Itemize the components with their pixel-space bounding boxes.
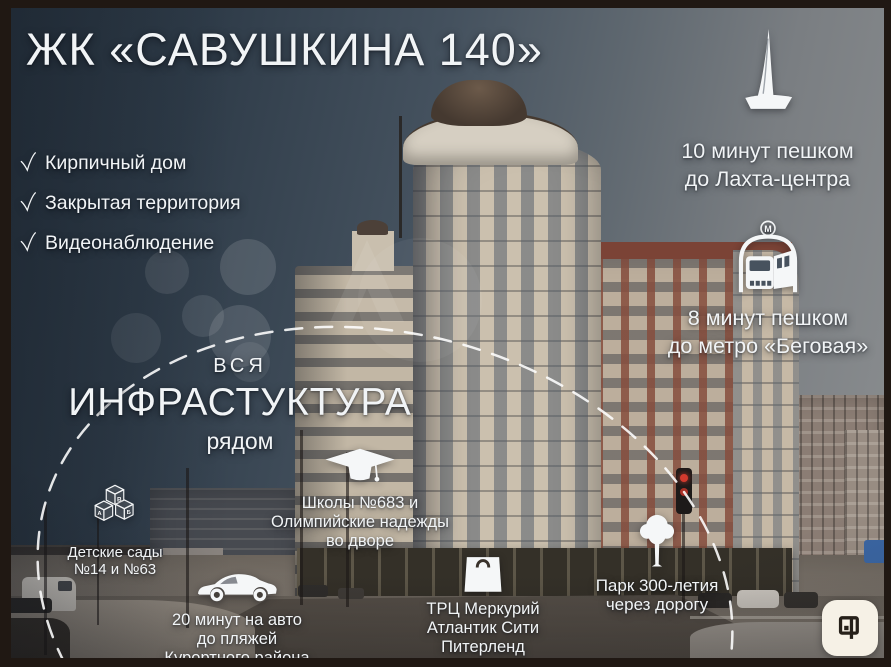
infrastructure-line1: ВСЯ	[60, 355, 420, 378]
metro-line1: 8 минут пешком	[648, 304, 888, 332]
block-letter: В	[117, 497, 122, 504]
metro-line2: до метро «Беговая»	[648, 332, 888, 360]
lakhta-tower-icon	[737, 10, 799, 132]
app-logo-badge	[822, 600, 878, 656]
check-icon	[20, 148, 36, 175]
feature-item: Закрытая территория	[20, 188, 241, 215]
page-title: ЖК «САВУШКИНА 140»	[26, 24, 543, 76]
listing-infographic: ЖК «САВУШКИНА 140» Кирпичный дом Закрыта…	[0, 0, 891, 667]
poi-label-line: до пляжей	[142, 630, 332, 649]
feature-item: Кирпичный дом	[20, 148, 241, 175]
metro-landmark: М 8 минут пешком до метро «Беговая»	[648, 220, 888, 361]
poi-park: Парк 300-летия через дорогу	[572, 512, 742, 615]
lakhta-line2: до Лахта-центра	[650, 165, 885, 193]
car-icon	[193, 566, 281, 605]
toy-blocks-icon: В А Б	[87, 484, 143, 538]
poi-beach-car: 20 минут на авто до пляжей Курортного ра…	[142, 566, 332, 667]
tree-icon	[636, 512, 678, 570]
infrastructure-heading: ВСЯ ИНФРАСТУКТУРА рядом	[60, 355, 420, 455]
feature-label: Закрытая территория	[45, 188, 241, 215]
check-icon	[20, 188, 36, 215]
poi-label-line: Детские сады	[35, 544, 195, 561]
poi-label-line: Питерленд	[398, 638, 568, 657]
shopping-bag-icon	[462, 549, 504, 594]
check-icon	[20, 228, 36, 255]
infrastructure-line2: ИНФРАСТУКТУРА	[60, 381, 420, 425]
block-letter: Б	[127, 510, 131, 516]
poi-label-line: Олимпийские надежды	[262, 513, 458, 532]
poi-mall: ТРЦ Меркурий Атлантик Сити Питерленд	[398, 549, 568, 657]
poi-label-line: Парк 300-летия	[572, 576, 742, 596]
feature-item: Видеонаблюдение	[20, 228, 241, 255]
poi-label-line: ТРЦ Меркурий	[398, 600, 568, 619]
poi-label-line: 20 минут на авто	[142, 611, 332, 630]
feature-label: Видеонаблюдение	[45, 228, 214, 255]
poi-label-line: Курортного района	[142, 649, 332, 667]
feature-checklist: Кирпичный дом Закрытая территория Видеон…	[20, 148, 241, 268]
poi-label-line: Школы №683 и	[262, 494, 458, 513]
poi-label-line: Атлантик Сити	[398, 619, 568, 638]
lakhta-landmark: 10 минут пешком до Лахта-центра	[650, 10, 885, 194]
poi-school: Школы №683 и Олимпийские надежды во двор…	[262, 446, 458, 551]
metro-train-icon: М	[727, 220, 809, 299]
metro-badge-letter: М	[764, 224, 772, 234]
app-logo-glyph	[834, 612, 866, 644]
lakhta-line1: 10 минут пешком	[650, 137, 885, 165]
poi-label-line: через дорогу	[572, 595, 742, 615]
feature-label: Кирпичный дом	[45, 148, 186, 175]
poi-kindergarten: В А Б Детские сады №14 и №63	[35, 484, 195, 578]
graduation-cap-icon	[322, 446, 398, 488]
